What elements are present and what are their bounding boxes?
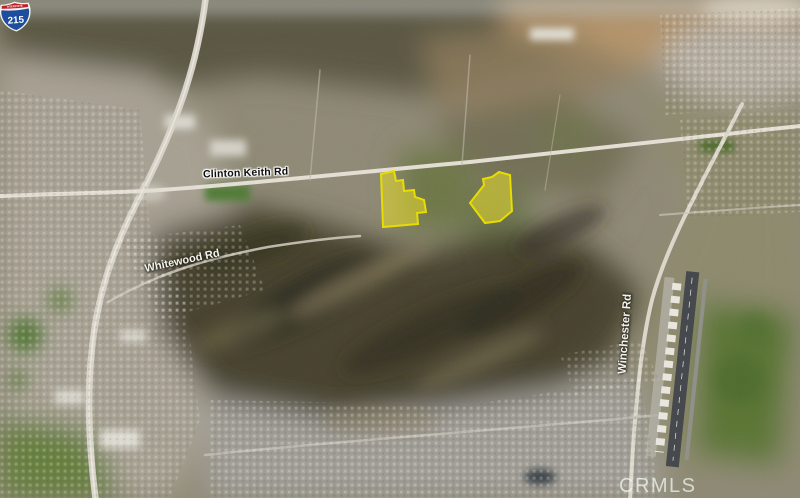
parcel-highlight-layer — [0, 0, 800, 498]
shield-route-number: 215 — [7, 15, 25, 27]
interstate-215-shield-icon: INTERSTATE 215 — [0, 0, 32, 33]
listing-aerial-photo: Clinton Keith Rd Whitewood Rd Winchester… — [0, 0, 800, 498]
road-label-clinton-keith-rd: Clinton Keith Rd — [203, 167, 289, 180]
highlighted-parcel-east — [470, 172, 512, 223]
crmls-watermark: CRMLS — [619, 475, 697, 498]
highlighted-parcel-west — [381, 171, 426, 227]
